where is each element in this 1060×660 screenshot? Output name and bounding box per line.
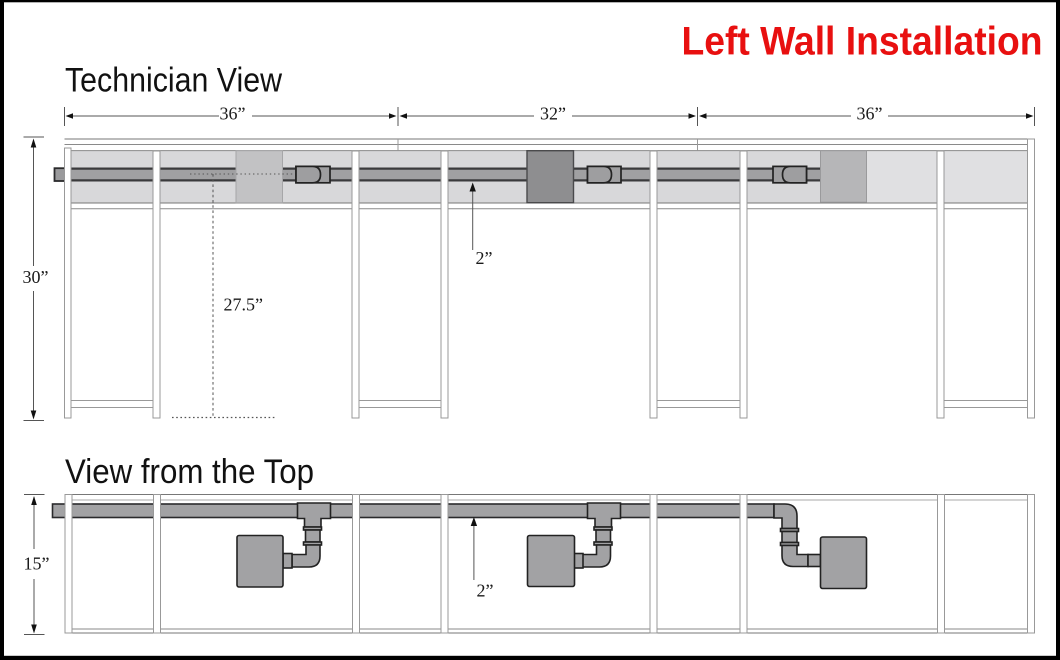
svg-text:2”: 2” <box>476 248 493 268</box>
svg-text:36”: 36” <box>220 104 246 124</box>
svg-text:32”: 32” <box>540 104 566 124</box>
svg-text:2”: 2” <box>477 581 494 601</box>
svg-text:27.5”: 27.5” <box>224 295 264 315</box>
svg-text:Technician View: Technician View <box>65 62 282 100</box>
svg-text:15”: 15” <box>24 554 50 574</box>
svg-text:30”: 30” <box>23 267 49 287</box>
svg-text:Left Wall Installation: Left Wall Installation <box>682 20 1043 64</box>
svg-text:36”: 36” <box>857 104 883 124</box>
svg-text:View from the Top: View from the Top <box>65 453 314 491</box>
